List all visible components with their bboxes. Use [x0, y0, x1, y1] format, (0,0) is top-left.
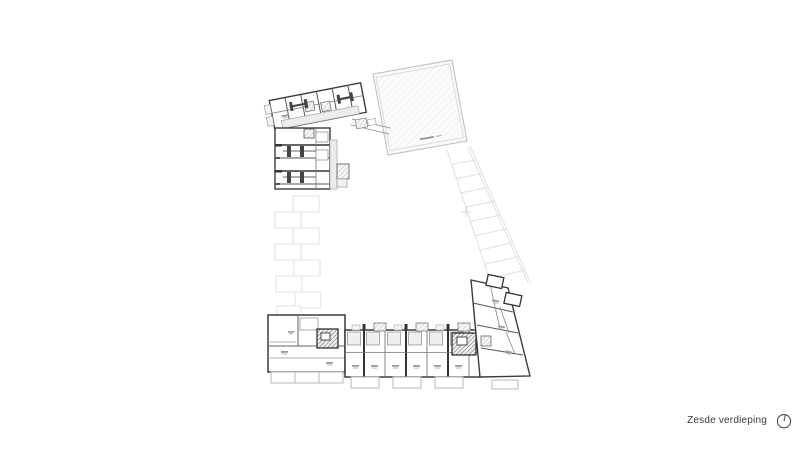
stair-shaft — [337, 164, 349, 179]
balcony-strip — [492, 380, 518, 389]
shaft — [481, 336, 491, 346]
balcony-strip — [271, 372, 343, 383]
northwest-wing — [263, 83, 366, 131]
ghost-left-lower-floor — [275, 196, 321, 315]
balcony — [486, 274, 504, 288]
floorplan-sheet: Zesde verdieping — [0, 0, 800, 450]
west-wing — [275, 128, 349, 189]
shaft — [321, 101, 332, 112]
north-arrow-icon — [776, 413, 792, 429]
balcony — [504, 292, 522, 306]
roof-block — [373, 60, 467, 155]
balcony — [264, 104, 272, 114]
south-wing — [268, 315, 480, 388]
floor-title: Zesde verdieping — [687, 412, 767, 430]
survey-cross-mark — [461, 207, 471, 217]
balcony — [266, 116, 274, 126]
corridor — [330, 140, 337, 189]
balcony-strip — [351, 377, 463, 388]
floorplan-drawing — [0, 0, 800, 450]
sheet-caption: Zesde verdieping — [687, 412, 792, 430]
shaft — [304, 129, 314, 138]
southeast-block — [471, 274, 530, 389]
ghost-right-lower-floor — [447, 146, 531, 293]
